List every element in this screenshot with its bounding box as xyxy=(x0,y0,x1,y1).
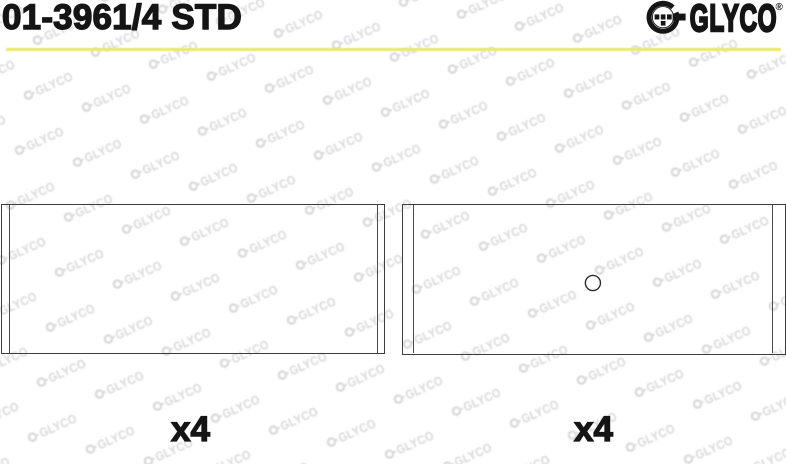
svg-text:GLYCO: GLYCO xyxy=(690,0,777,40)
svg-text:®: ® xyxy=(776,2,784,13)
